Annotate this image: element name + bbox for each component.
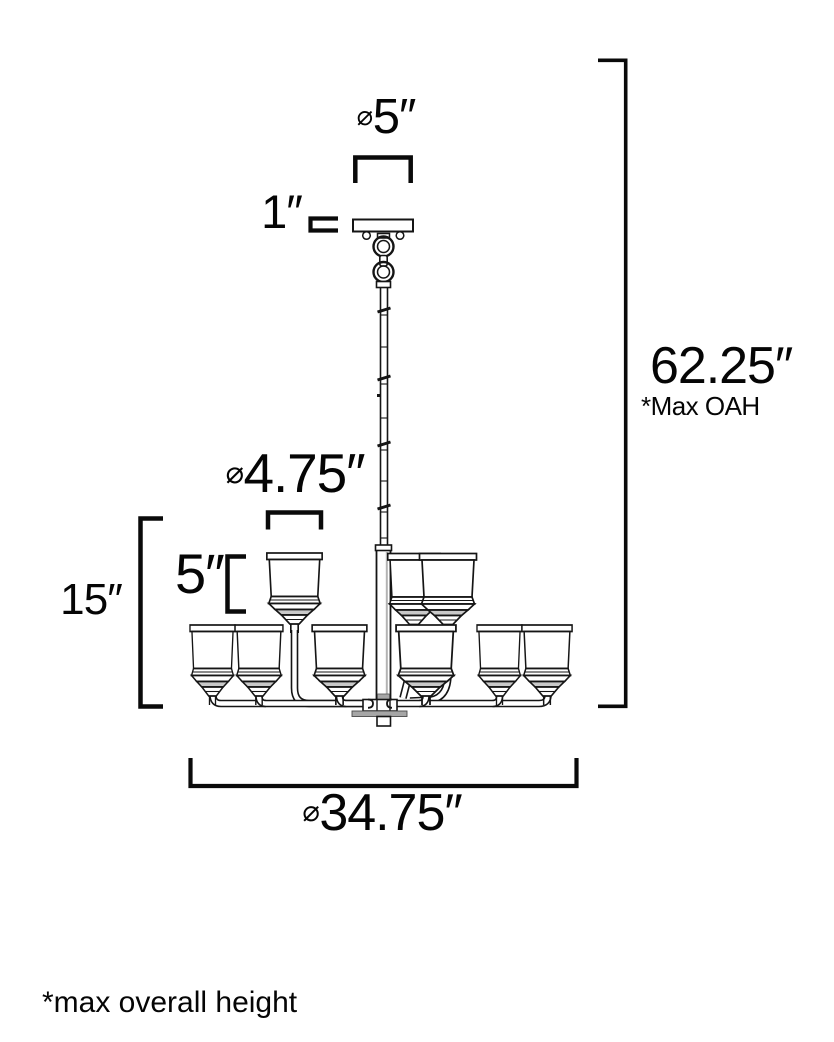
canopy-diameter-label: ⌀5″: [326, 93, 446, 142]
shade-height-value: 5″: [175, 542, 224, 605]
canopy-diameter-bracket: [355, 158, 410, 184]
upper-tier-shades: [267, 553, 477, 634]
canopy-diameter-value: 5″: [373, 90, 416, 144]
shade-height-label: 5″: [175, 546, 224, 602]
canopy-height-bracket: [311, 219, 339, 231]
fixture-diameter-label: ⌀34.75″: [282, 787, 482, 839]
lower-tier-shades: [190, 625, 572, 705]
fixture-diameter-bracket: [191, 758, 577, 786]
hanging-loops: [374, 234, 394, 288]
shade-diameter-label: ⌀4.75″: [205, 446, 385, 501]
canopy-height-value: 1″: [261, 185, 302, 238]
canopy-height-label: 1″: [222, 188, 302, 235]
center-column: [376, 545, 392, 701]
shade-height-bracket: [228, 557, 247, 612]
hub-gray-plate: [352, 711, 407, 717]
bottom-finial: [377, 717, 391, 727]
chandelier-spec-diagram: ⌀5″ 1″ 62.25″ *Max OAH ⌀4.75″ 5″ 15″ ⌀34…: [0, 0, 834, 1042]
shade-diameter-bracket: [268, 513, 321, 530]
overall-height-value: 62.25″: [650, 337, 792, 395]
body-height-bracket: [141, 519, 164, 707]
body-height-label: 15″: [34, 578, 122, 622]
chandelier-line-drawing: [0, 0, 834, 1042]
overall-height-bracket: [598, 60, 626, 706]
footnote-text: *max overall height: [42, 986, 297, 1019]
footnote: *max overall height: [42, 988, 297, 1018]
overall-height-label: 62.25″: [650, 340, 792, 392]
body-height-value: 15″: [60, 575, 122, 624]
overall-height-note-text: *Max OAH: [641, 391, 760, 421]
hanger-rod: [377, 288, 391, 545]
shade-diameter-value: 4.75″: [244, 442, 365, 504]
fixture-diameter-value: 34.75″: [319, 784, 461, 842]
diameter-symbol: ⌀: [225, 455, 242, 491]
diameter-symbol: ⌀: [357, 101, 373, 132]
overall-height-note: *Max OAH: [641, 393, 760, 419]
diameter-symbol: ⌀: [302, 794, 319, 828]
